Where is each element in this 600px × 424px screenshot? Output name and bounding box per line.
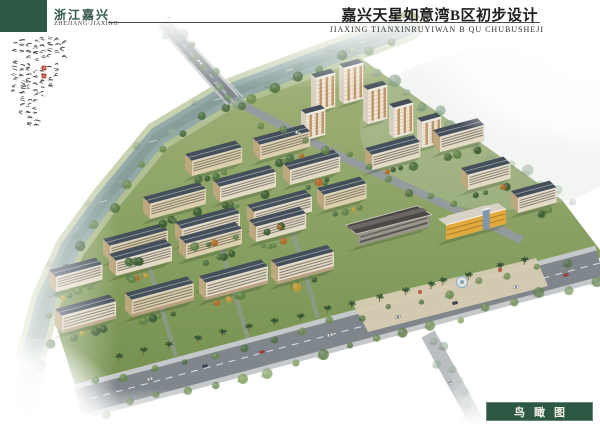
design-sheet: 浙江嘉兴 ZHEJIANG·JIAXING 嘉兴天星如意湾B区初步设计 JIAX… bbox=[0, 0, 600, 424]
page-title-en: JIAXING TIANXINRUYIWAN B QU CHUBUSHEJI bbox=[330, 25, 544, 34]
caption-box: 鸟瞰图 bbox=[486, 402, 593, 421]
caption-label: 鸟瞰图 bbox=[505, 404, 574, 420]
aerial-rendering bbox=[0, 0, 600, 424]
page-title: 嘉兴天星如意湾B区初步设计 bbox=[341, 4, 538, 25]
red-seal-stamp bbox=[41, 73, 46, 78]
red-seal-stamp bbox=[41, 65, 46, 70]
logo-block bbox=[0, 0, 47, 32]
